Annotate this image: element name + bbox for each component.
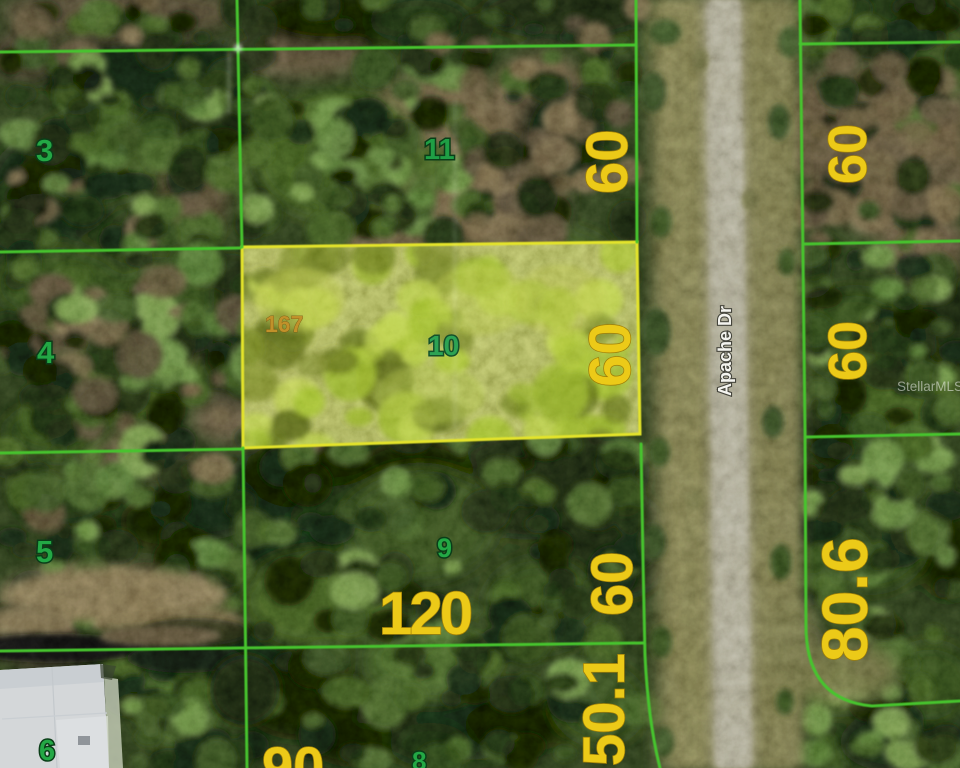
svg-text:60: 60 xyxy=(818,321,878,381)
svg-text:60: 60 xyxy=(580,551,645,616)
svg-text:4: 4 xyxy=(37,335,55,370)
svg-text:Apache Dr: Apache Dr xyxy=(715,306,735,396)
svg-text:11: 11 xyxy=(424,134,455,166)
svg-text:60: 60 xyxy=(575,129,640,194)
svg-text:167: 167 xyxy=(265,311,303,337)
svg-text:8: 8 xyxy=(412,746,426,768)
svg-text:10: 10 xyxy=(428,330,459,361)
svg-text:90: 90 xyxy=(262,735,324,768)
svg-text:60: 60 xyxy=(578,322,643,387)
svg-text:60: 60 xyxy=(818,124,878,184)
svg-text:80.6: 80.6 xyxy=(809,537,881,662)
svg-text:StellarMLS: StellarMLS xyxy=(897,379,960,394)
svg-text:5: 5 xyxy=(36,534,53,569)
svg-text:50.1: 50.1 xyxy=(572,653,637,766)
svg-text:6: 6 xyxy=(39,735,55,767)
svg-text:9: 9 xyxy=(437,533,452,563)
svg-text:3: 3 xyxy=(36,133,53,168)
svg-text:120: 120 xyxy=(379,580,471,647)
